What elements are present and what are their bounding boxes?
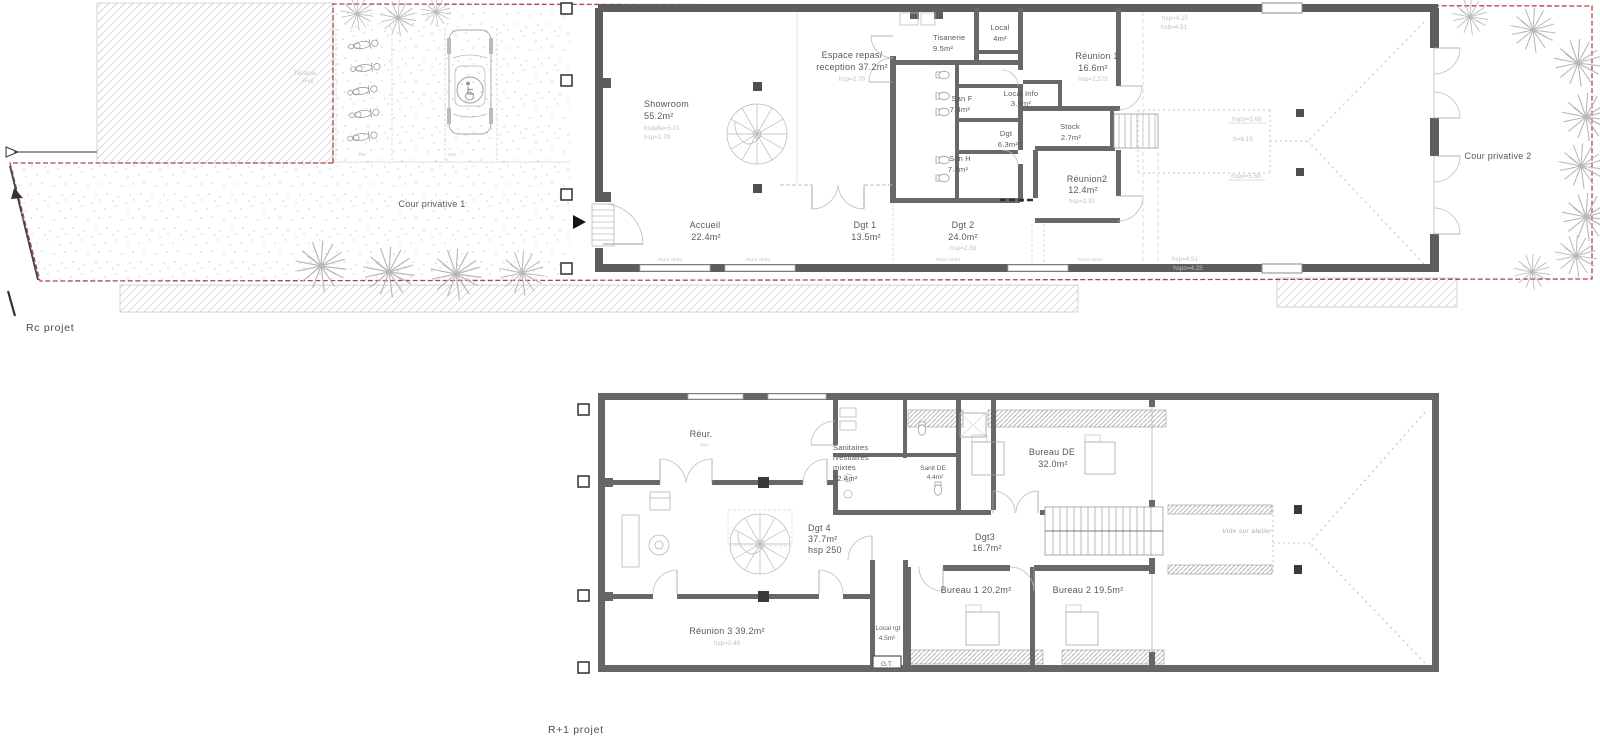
floor-plan-sheet: 6.20: [0, 0, 1600, 743]
door-block-2: [758, 591, 769, 602]
room-area-dgt1: 13.5m²: [851, 232, 881, 242]
room-label-dgt4: Dgt 4: [808, 523, 831, 533]
spiral-stair-rc: [727, 104, 787, 164]
room-sub-reunion2: hsp=2.31: [1069, 198, 1096, 205]
room-area-dgt4: 37.7m²: [808, 534, 838, 544]
room-sub2-showroom: hsp=2.79: [644, 134, 671, 141]
room-label-san-h: San H: [949, 154, 971, 163]
hatched-strip-bottom-right: [1277, 278, 1457, 307]
room-area-reunion1: 16.6m²: [1078, 63, 1108, 73]
room-area-bureau-de: 32.0m²: [1038, 459, 1068, 469]
room-label-sanitaires-1: Sanitaires: [833, 443, 868, 452]
room-label-local: Local: [991, 23, 1010, 32]
room-sub-reur: hsp=: [700, 442, 711, 448]
room-label-espace-repas-2: reception 37.2m²: [816, 62, 888, 72]
room-sub-reunion3: hsp=2.48: [714, 640, 741, 647]
room-area-showroom: 55.2m²: [644, 111, 674, 121]
label-cour-privative-2: Cour privative 2: [1464, 151, 1531, 161]
showroom-double-door: [780, 185, 893, 209]
atelier-anno-mid1: hspo=5.68: [1232, 116, 1262, 123]
room-label-showroom: Showroom: [644, 99, 689, 109]
r1-stair: [1045, 507, 1163, 555]
r1-plan: Réur. hsp= Sanitaires /vestiaires mixtes…: [548, 393, 1439, 736]
door-block-1: [758, 477, 769, 488]
room-area-dgt3: 16.7m²: [972, 543, 1002, 553]
room-label-dgt: Dgt: [1000, 129, 1013, 138]
walkway-end-2: [1294, 565, 1302, 574]
hatched-parcel-top-left: [97, 3, 333, 163]
spiral-stair-r1: [730, 514, 790, 574]
rc-stair: [1114, 114, 1158, 148]
room-area-local: 4m²: [993, 34, 1007, 43]
room-label-sanitaires-3: mixtes: [833, 463, 856, 472]
plan-drawing: 6.20: [0, 0, 1600, 743]
facade-label-1: Paroi vitrée: [658, 257, 683, 263]
room-area-local-rgt: 4.5m²: [879, 635, 896, 642]
terrasse-label-2: R+1: [302, 79, 314, 85]
entrance-steps: [592, 204, 614, 246]
atelier-anno-bot1: hsp=4.51: [1172, 256, 1199, 263]
room-sub-espace-repas: hsp=2.79: [839, 76, 866, 83]
room-label-local-info: Local Info: [1004, 89, 1039, 98]
room-label-bureau1: Bureau 1 20.2m²: [941, 585, 1012, 595]
atelier-anno-mid3: hspo=5.68: [1231, 173, 1261, 180]
room-area-sanit-de: 4.4m²: [927, 474, 944, 481]
entrance-arrow-icon: [573, 215, 586, 229]
room-label-dgt2: Dgt 2: [952, 220, 975, 230]
room-area-stock: 2.7m²: [1061, 133, 1081, 142]
cour-privative-1-ground: [10, 163, 570, 281]
dim-330: 330: [448, 152, 456, 158]
atelier-anno-top2: hsb=4.51: [1161, 24, 1188, 31]
atelier-anno-top1: hsp=4.25: [1162, 15, 1189, 22]
hatched-strip-bottom: [120, 285, 1078, 312]
room-sub-reunion1: hsp=2.375: [1078, 76, 1108, 83]
label-gt: G.T.: [881, 661, 893, 668]
void-roof-lines: [1273, 412, 1425, 663]
room-sub-dgt2: hsp=2.38: [950, 245, 977, 252]
room-label-dgt1: Dgt 1: [854, 220, 877, 230]
room-label-sanitaires-4: 12.4m²: [833, 474, 858, 483]
room-area-dgt2: 24.0m²: [948, 232, 978, 242]
room-label-bureau-de: Bureau DE: [1029, 447, 1075, 457]
rc-plan-title: Rc projet: [26, 322, 74, 334]
facade-label-3: Paroi vitrée: [936, 257, 961, 263]
room-label-sanitaires-2: /vestiaires: [833, 453, 869, 462]
room-label-reur: Réur.: [690, 429, 713, 439]
room-label-accueil: Accueil: [690, 220, 721, 230]
room-label-tisanerie: Tisanerie: [933, 33, 965, 42]
room-area-tisanerie: 9.5m²: [933, 44, 953, 53]
terrasse-label-1: Terrasse: [293, 71, 317, 77]
room-area-reunion2: 12.4m²: [1068, 185, 1098, 195]
atelier-anno-mid2: h=6.19: [1233, 136, 1253, 143]
room-label-san-f: San F: [951, 94, 972, 103]
room-label-bureau2: Bureau 2 19.5m²: [1053, 585, 1124, 595]
room-area-accueil: 22.4m²: [691, 232, 721, 242]
atelier-anno-bot2: hspo=4.25: [1173, 265, 1203, 272]
room-label-stock: Stock: [1060, 122, 1080, 131]
dim-250: 250: [358, 152, 366, 158]
room-sub1-showroom: hsdalle=5.01: [644, 125, 680, 132]
room-label-reunion3: Réunion 3 39.2m²: [689, 626, 765, 636]
atelier-roof-lines: [1138, 22, 1424, 264]
room-label-reunion1: Réunion 1: [1075, 51, 1118, 61]
room-label-local-rgt: Local rgt: [876, 625, 901, 632]
room-label-reunion2: Réunion2: [1067, 174, 1108, 184]
room-area-san-f: 7.4m²: [950, 105, 970, 114]
label-vide-sur-atelier: Vide sur atelier: [1222, 528, 1272, 535]
facade-label-2: Paroi vitrée: [746, 257, 771, 263]
room-label-sanit-de: Sanit DE: [920, 465, 946, 472]
facade-label-4: Paroi vitrée: [1078, 257, 1103, 263]
r1-furniture: [622, 492, 670, 567]
room-label-espace-repas-1: Espace repas/: [822, 50, 883, 60]
room-area-local-info: 3.3m²: [1011, 99, 1031, 108]
room-label-dgt3: Dgt3: [975, 532, 995, 542]
rc-outer-walls: [595, 4, 1439, 272]
room-area-dgt: 6.3m²: [998, 140, 1018, 149]
section-markers-r1: [578, 404, 589, 673]
r1-plan-title: R+1 projet: [548, 724, 604, 736]
rc-plan: 6.20: [6, 0, 1600, 334]
room-sub-dgt4: hsp 250: [808, 545, 842, 555]
walkway-end-1: [1294, 505, 1302, 514]
label-cour-privative-1: Cour privative 1: [398, 199, 465, 209]
room-area-san-h: 7.4m²: [948, 165, 968, 174]
